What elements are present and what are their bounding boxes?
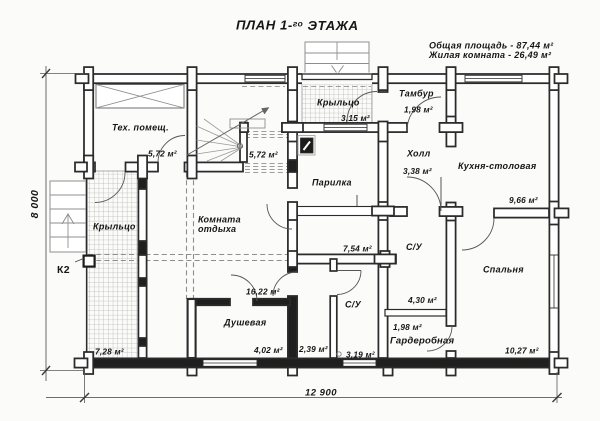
svg-text:9,66 м²: 9,66 м² [509,195,538,205]
svg-text:4,30 м²: 4,30 м² [407,295,437,305]
svg-text:Холл: Холл [406,149,431,159]
svg-text:К2: К2 [57,264,70,276]
svg-text:12 900: 12 900 [305,388,337,399]
svg-text:Спальня: Спальня [483,265,524,275]
svg-text:Общая площадь - 87,44 м²: Общая площадь - 87,44 м² [429,41,554,51]
svg-text:Гардеробная: Гардеробная [390,336,454,347]
svg-text:3,19 м²: 3,19 м² [346,350,375,360]
svg-text:Душевая: Душевая [223,318,267,328]
svg-text:7,28 м²: 7,28 м² [95,347,124,357]
svg-text:3,38 м²: 3,38 м² [403,166,432,176]
svg-text:8 000: 8 000 [29,190,41,219]
svg-text:Кухня-столовая: Кухня-столовая [458,161,537,171]
svg-text:2,39 м²: 2,39 м² [298,344,328,354]
svg-text:7,54 м²: 7,54 м² [343,244,372,254]
svg-text:16,22 м²: 16,22 м² [246,287,280,297]
svg-text:Комната: Комната [198,215,241,225]
svg-text:Жилая комната - 26,49 м²: Жилая комната - 26,49 м² [428,50,552,60]
svg-text:10,27 м²: 10,27 м² [505,346,539,356]
svg-text:Крыльцо: Крыльцо [93,222,136,232]
svg-text:Тех. помещ.: Тех. помещ. [112,123,169,133]
svg-text:4,02 м²: 4,02 м² [253,345,283,355]
svg-text:5,72 м²: 5,72 м² [249,150,278,160]
svg-text:С/У: С/У [345,300,362,310]
svg-text:Крыльцо: Крыльцо [317,98,360,108]
svg-text:отдыха: отдыха [198,224,236,234]
svg-text:3,15 м²: 3,15 м² [341,113,370,123]
svg-text:1,98 м²: 1,98 м² [404,105,433,115]
svg-text:1,98 м²: 1,98 м² [393,322,422,332]
svg-text:С/У: С/У [406,242,423,252]
svg-text:Тамбур: Тамбур [399,89,434,99]
svg-text:5,72 м²: 5,72 м² [148,149,177,159]
svg-text:Парилка: Парилка [312,178,352,188]
